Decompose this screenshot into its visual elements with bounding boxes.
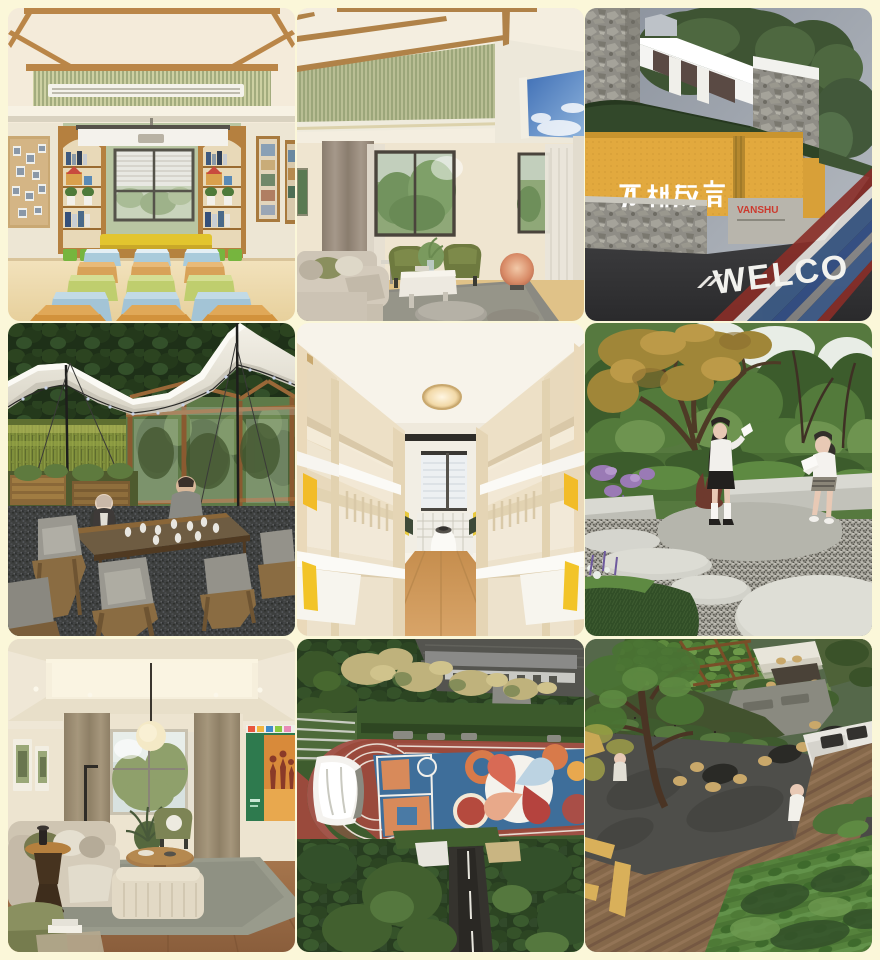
svg-text:VANSHU: VANSHU — [737, 205, 778, 216]
